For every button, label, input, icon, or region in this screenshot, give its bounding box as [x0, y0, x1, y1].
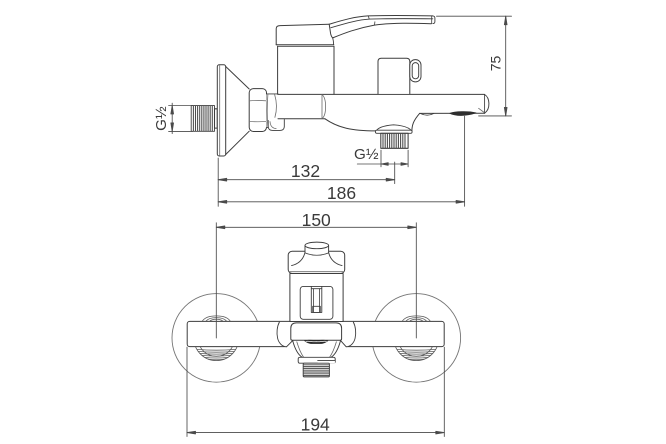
svg-text:194: 194 [301, 415, 330, 435]
svg-text:75: 75 [487, 56, 503, 72]
svg-text:186: 186 [327, 183, 356, 203]
svg-text:G½: G½ [153, 106, 170, 131]
svg-text:G½: G½ [354, 146, 379, 163]
svg-text:150: 150 [302, 210, 331, 230]
svg-text:132: 132 [291, 161, 320, 181]
